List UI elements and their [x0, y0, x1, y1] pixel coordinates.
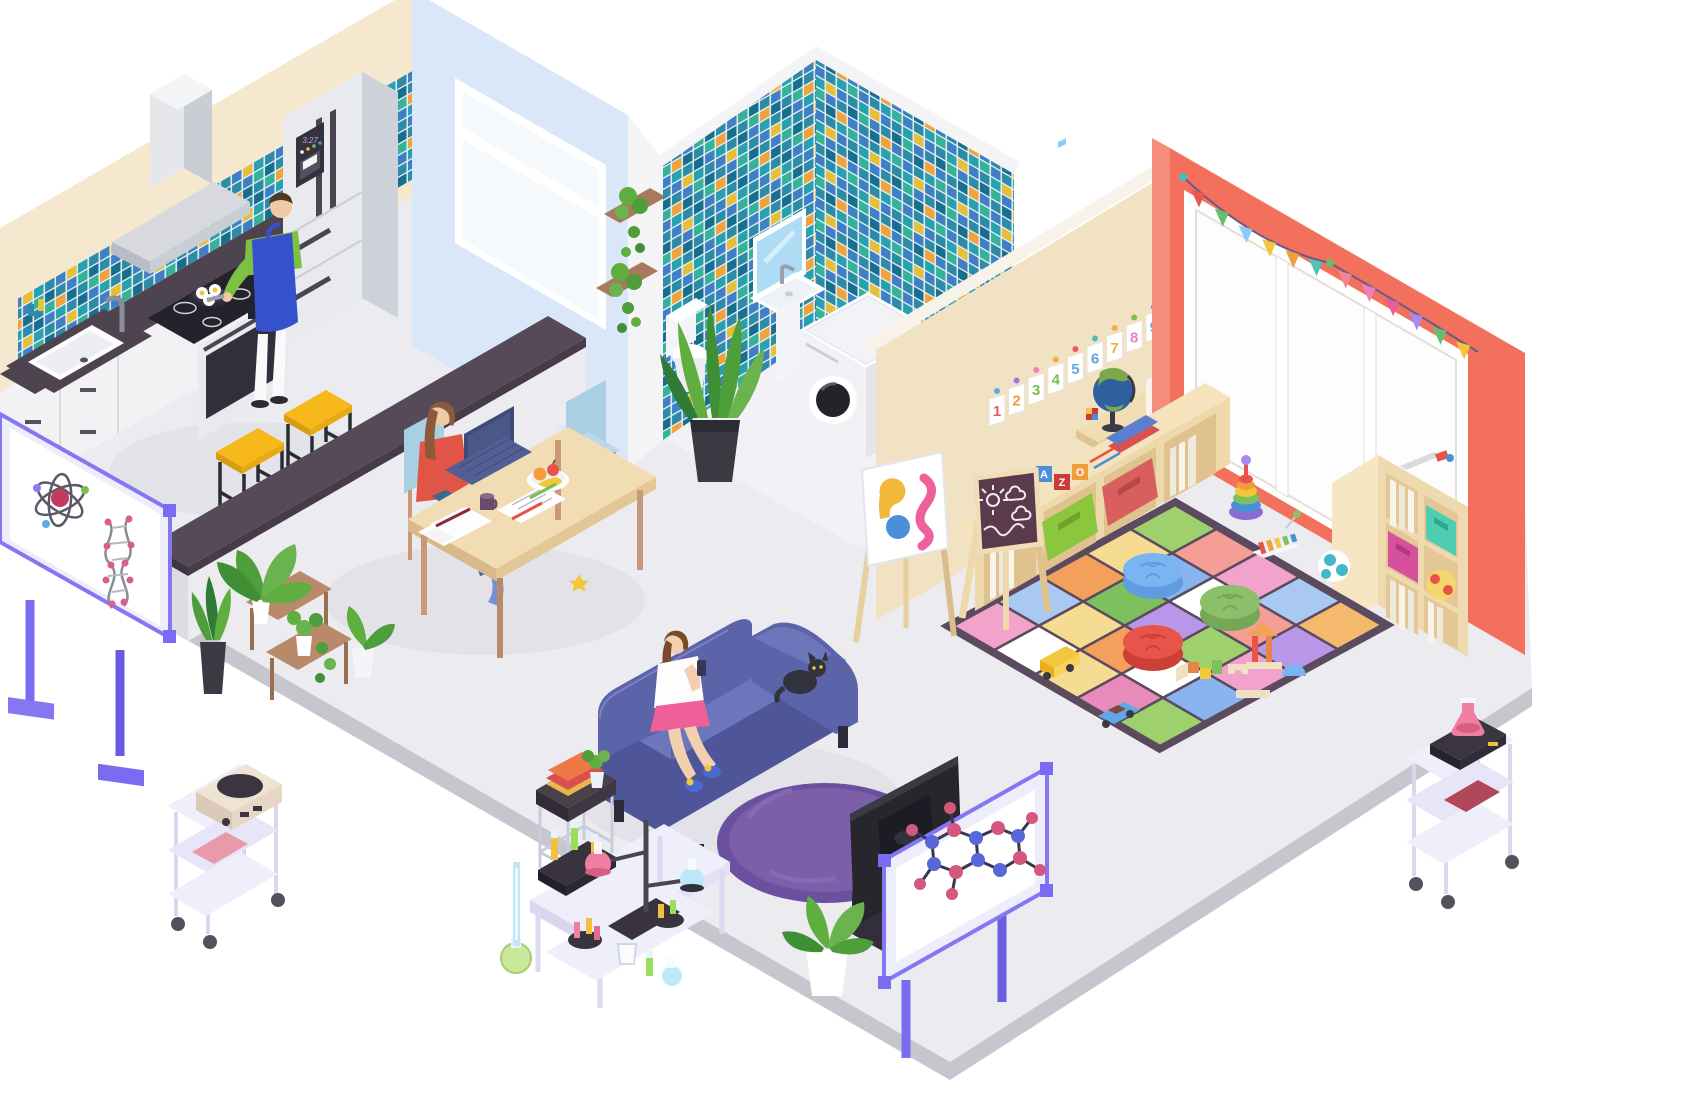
soccer-ball: [1318, 550, 1350, 582]
pouf-red: [1123, 625, 1183, 671]
svg-text:7: 7: [1110, 340, 1118, 357]
svg-text:5: 5: [1071, 361, 1079, 378]
lab-cart-left: [168, 764, 285, 949]
thermometer-flask: [501, 862, 531, 973]
svg-text:1: 1: [993, 403, 1001, 420]
svg-text:O: O: [1076, 467, 1085, 479]
r-cube: [1086, 408, 1098, 420]
svg-text:8: 8: [1130, 330, 1138, 347]
isometric-home-illustration: 123456789: [0, 0, 1694, 1096]
pouf-blue: [1123, 553, 1183, 599]
svg-text:2: 2: [1012, 393, 1020, 410]
pouf-green: [1200, 585, 1260, 631]
svg-text:3:27: 3:27: [302, 136, 318, 145]
svg-text:3: 3: [1032, 382, 1040, 399]
mug: [480, 493, 496, 510]
svg-text:Z: Z: [1059, 477, 1066, 489]
fridge: 3:27: [283, 72, 398, 344]
svg-text:6: 6: [1091, 351, 1099, 368]
svg-text:A: A: [1040, 469, 1048, 481]
svg-text:4: 4: [1052, 372, 1061, 389]
